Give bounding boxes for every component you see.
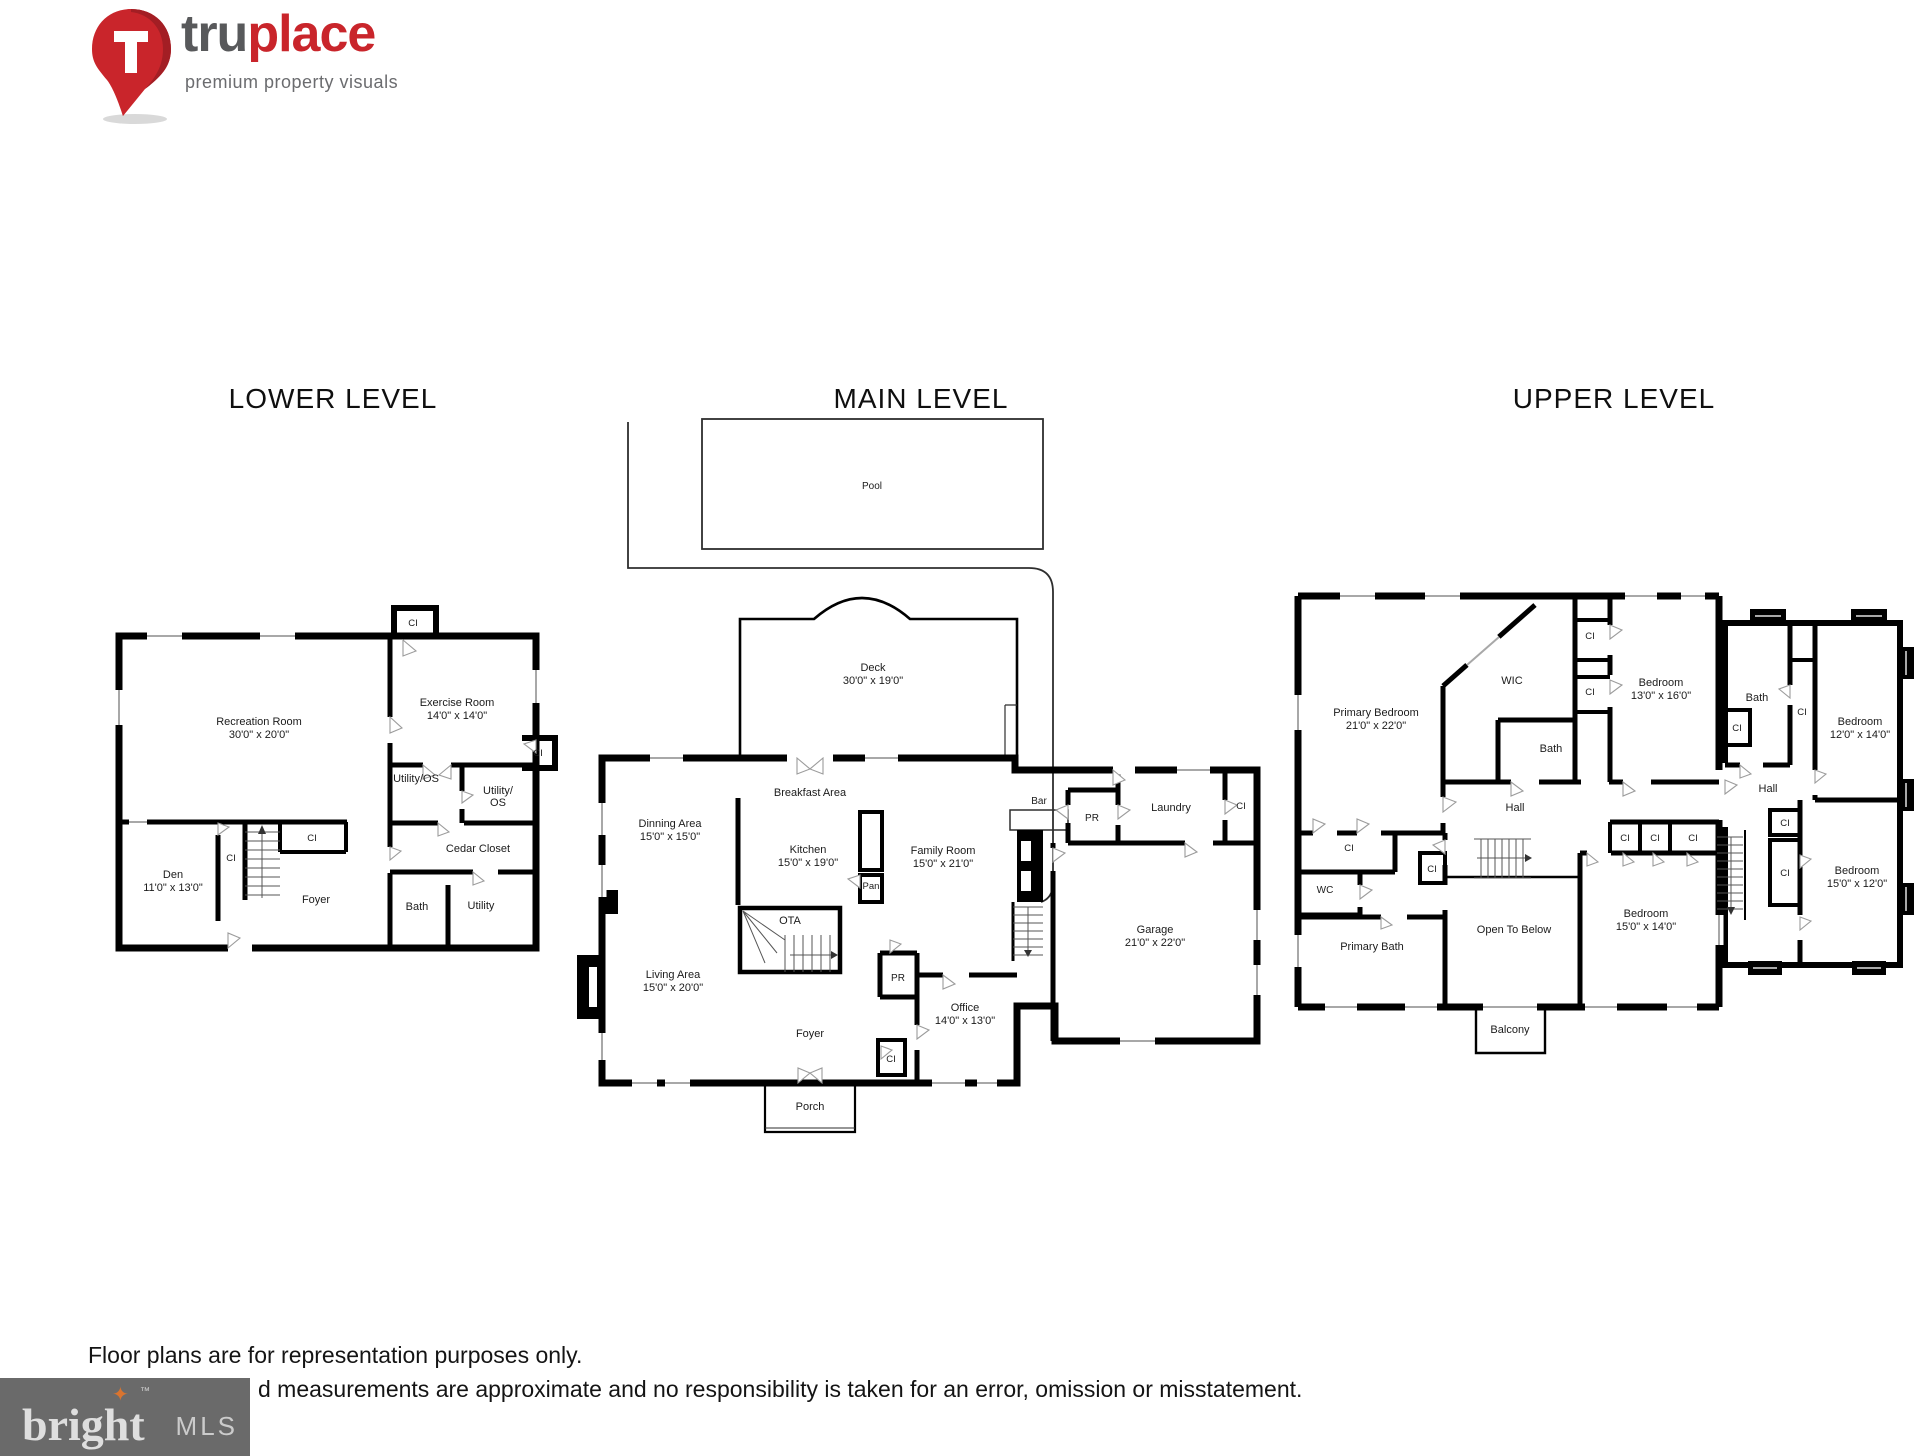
closet-label-ci: CI (307, 833, 317, 844)
room-dims-primary-bedroom: 21'0" x 22'0" (1346, 720, 1406, 732)
bright-star-icon: ✦ (112, 1382, 129, 1407)
room-label-primary-bath: Primary Bath (1340, 941, 1404, 953)
room-label-cedar-closet: Cedar Closet (446, 843, 510, 855)
brand-wordmark: truplace (181, 8, 375, 60)
room-label-bath-upper: Bath (1540, 743, 1563, 755)
room-label-pr2: PR (891, 973, 905, 984)
upper-level-plan: Primary Bedroom 21'0" x 22'0" WIC CI CI … (1285, 585, 1925, 1065)
room-label-open-to-below: Open To Below (1477, 924, 1551, 936)
room-dims-dinning: 15'0" x 15'0" (640, 831, 700, 843)
brand-place: place (247, 5, 375, 63)
title-lower-level: LOWER LEVEL (168, 383, 498, 415)
room-label-bedroom-15x12: Bedroom (1835, 865, 1880, 877)
room-label-family: Family Room (911, 845, 976, 857)
room-dims-bedroom-15x12: 15'0" x 12'0" (1827, 878, 1887, 890)
upper-level-doors (1313, 625, 1826, 930)
room-label-dinning: Dinning Area (639, 818, 703, 830)
room-label-recreation: Recreation Room (216, 716, 302, 728)
closet-label-ci: CI (226, 853, 236, 864)
closet-label-ci: CI (408, 618, 418, 629)
room-dims-living: 15'0" x 20'0" (643, 982, 703, 994)
truplace-logo: truplace premium property visuals (85, 6, 505, 126)
room-label-office: Office (951, 1002, 980, 1014)
closet-label-ci: CI (1585, 687, 1595, 698)
closet-label-ci: CI (1585, 631, 1595, 642)
room-dims-bedroom-15x14: 15'0" x 14'0" (1616, 921, 1676, 933)
room-label-utility-os2-l1: Utility/ (483, 785, 514, 797)
room-label-den: Den (163, 869, 183, 881)
closet-label-ci: CI (1780, 818, 1790, 829)
room-label-ota: OTA (779, 915, 801, 927)
room-label-deck: Deck (860, 662, 886, 674)
room-label-hall2: Hall (1759, 783, 1778, 795)
room-label-exercise: Exercise Room (420, 697, 495, 709)
closet-label-ci: CI (1620, 833, 1630, 844)
disclaimer-line1: Floor plans are for representation purpo… (88, 1342, 582, 1369)
room-label-garage: Garage (1137, 924, 1174, 936)
lower-level-walls (119, 608, 555, 948)
room-label-porch: Porch (796, 1101, 825, 1113)
title-upper-level: UPPER LEVEL (1449, 383, 1779, 415)
mls-wordmark: MLS (176, 1411, 238, 1442)
room-label-kitchen: Kitchen (790, 844, 827, 856)
bright-tm-mark: ™ (140, 1386, 150, 1397)
closet-label-ci: CI (1650, 833, 1660, 844)
main-level-labels: Pool Deck 30'0" x 19'0" Breakfast Area D… (639, 481, 1246, 1113)
room-label-living: Living Area (646, 969, 701, 981)
room-label-pan: Pan (863, 881, 880, 892)
room-label-breakfast: Breakfast Area (774, 787, 847, 799)
room-label-utility-os: Utility/OS (393, 773, 439, 785)
closet-label-ci: CI (1732, 723, 1742, 734)
closet-label-ci: CI (533, 748, 543, 759)
room-label-bedroom-13x16: Bedroom (1639, 677, 1684, 689)
room-dims-family: 15'0" x 21'0" (913, 858, 973, 870)
room-label-foyer-lower: Foyer (302, 894, 330, 906)
room-label-laundry: Laundry (1151, 802, 1191, 814)
truplace-pin-icon (85, 6, 177, 126)
main-level-plan: Pool Deck 30'0" x 19'0" Breakfast Area D… (565, 405, 1275, 1145)
room-label-bedroom-12x14: Bedroom (1838, 716, 1883, 728)
room-label-balcony: Balcony (1490, 1024, 1530, 1036)
closet-label-ci: CI (1780, 868, 1790, 879)
room-label-primary-bedroom: Primary Bedroom (1333, 707, 1419, 719)
closet-label-ci: CI (1688, 833, 1698, 844)
room-label-bar: Bar (1031, 796, 1047, 807)
bright-mls-logo: bright ✦ ™ MLS (0, 1378, 250, 1456)
closet-label-ci: CI (886, 1054, 896, 1065)
lower-level-stairs (245, 825, 280, 898)
closet-label-ci: CI (1344, 843, 1354, 854)
room-dims-exercise: 14'0" x 14'0" (427, 710, 487, 722)
room-dims-bedroom-13x16: 13'0" x 16'0" (1631, 690, 1691, 702)
room-label-wc: WC (1317, 885, 1334, 896)
room-dims-bedroom-12x14: 12'0" x 14'0" (1830, 729, 1890, 741)
room-dims-deck: 30'0" x 19'0" (843, 675, 903, 687)
disclaimer-line2: d measurements are approximate and no re… (258, 1376, 1302, 1403)
room-dims-kitchen: 15'0" x 19'0" (778, 857, 838, 869)
room-label-wic: WIC (1501, 675, 1522, 687)
room-label-bath2: Bath (1746, 692, 1769, 704)
room-dims-garage: 21'0" x 22'0" (1125, 937, 1185, 949)
bright-wordmark: bright (22, 1402, 145, 1448)
floorplan-sheet: truplace premium property visuals LOWER … (0, 0, 1925, 1456)
room-label-bedroom-15x14: Bedroom (1624, 908, 1669, 920)
room-label-utility-os2-l2: OS (490, 797, 506, 809)
room-label-pool: Pool (862, 481, 882, 492)
room-label-foyer-main: Foyer (796, 1028, 824, 1040)
room-label-pr: PR (1085, 813, 1099, 824)
brand-tagline: premium property visuals (185, 72, 398, 93)
lower-level-plan: Recreation Room 30'0" x 20'0" Exercise R… (85, 595, 565, 965)
room-dims-den: 11'0" x 13'0" (143, 882, 203, 894)
room-label-hall: Hall (1506, 802, 1525, 814)
closet-label-ci: CI (1236, 801, 1246, 812)
room-label-utility: Utility (468, 900, 495, 912)
room-label-bath-lower: Bath (406, 901, 429, 913)
brand-tru: tru (181, 5, 247, 63)
room-dims-recreation: 30'0" x 20'0" (229, 729, 289, 741)
room-dims-office: 14'0" x 13'0" (935, 1015, 995, 1027)
closet-label-ci: CI (1427, 864, 1437, 875)
closet-label-ci: CI (1797, 707, 1807, 718)
